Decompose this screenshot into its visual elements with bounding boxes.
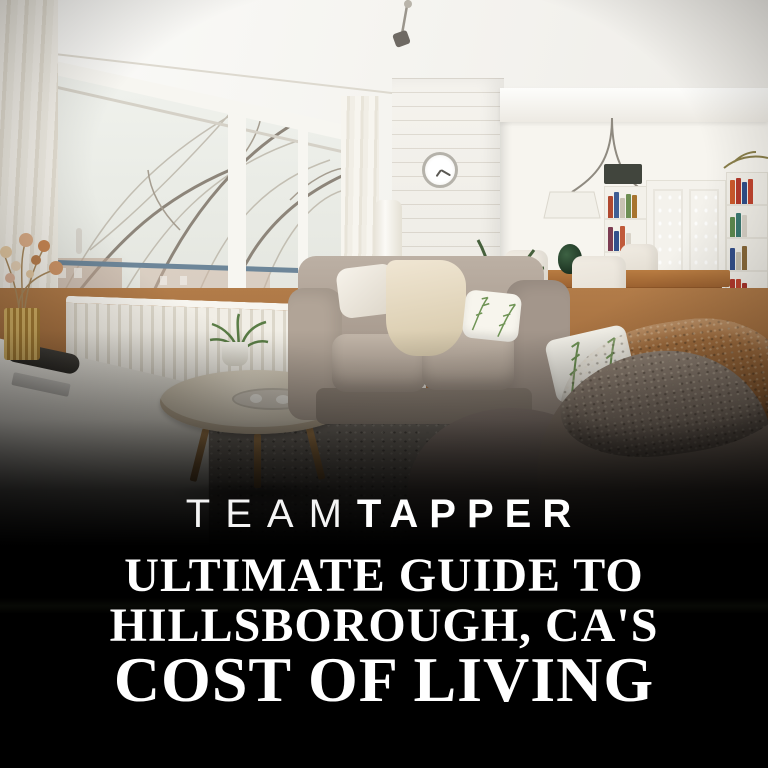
title-line-1: ULTIMATE GUIDE TO — [0, 551, 768, 601]
title-line-3: COST OF LIVING — [0, 651, 768, 709]
social-graphic: TEAMTAPPER ULTIMATE GUIDE TO HILLSBOROUG… — [0, 0, 768, 768]
brand-logo-tapper: TAPPER — [357, 492, 582, 536]
text-overlay: TEAMTAPPER ULTIMATE GUIDE TO HILLSBOROUG… — [0, 0, 768, 768]
page-title: ULTIMATE GUIDE TO HILLSBOROUGH, CA'S COS… — [0, 551, 768, 709]
brand-logo-team: TEAM — [186, 492, 357, 536]
brand-logo: TEAMTAPPER — [0, 494, 768, 534]
